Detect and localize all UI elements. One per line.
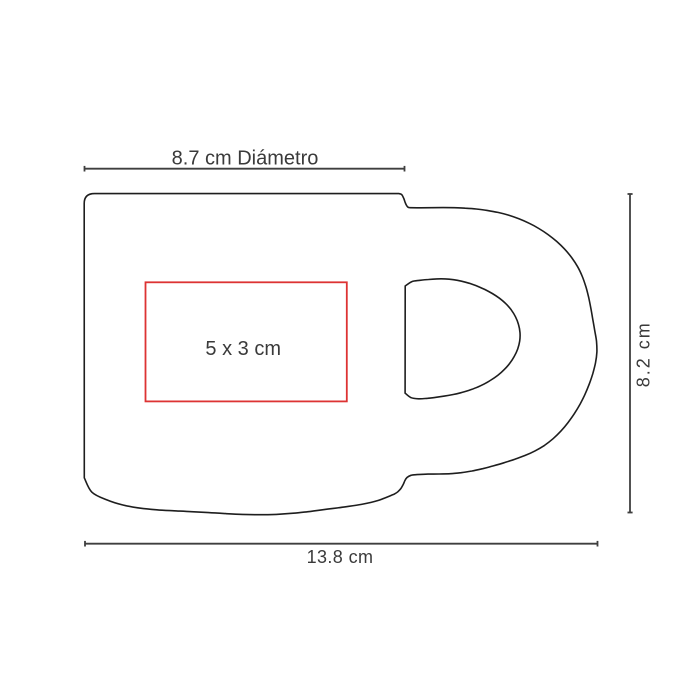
- svg-text:13.8 cm: 13.8 cm: [307, 547, 374, 567]
- svg-text:8.2 cm: 8.2 cm: [633, 321, 653, 387]
- svg-text:8.7 cm Diámetro: 8.7 cm Diámetro: [172, 148, 319, 170]
- svg-text:5 x 3 cm: 5 x 3 cm: [205, 338, 281, 360]
